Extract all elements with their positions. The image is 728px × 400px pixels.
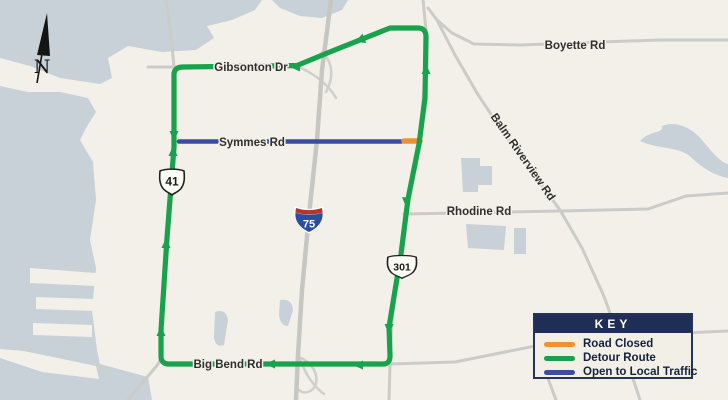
open-local-swatch-icon (544, 370, 575, 375)
detour-route-swatch-icon (544, 356, 575, 361)
us-41-label: 41 (165, 175, 179, 189)
detour-map: 41 75 301 Gibsonton Dr Boyette Rd Symmes… (0, 0, 728, 400)
road-label-boyette: Boyette Rd (545, 40, 606, 52)
legend-item-detour-route: Detour Route (544, 351, 691, 365)
pond-3 (514, 228, 526, 254)
legend-item-open-local: Open to Local Traffic (544, 365, 691, 379)
road-label-rhodine: Rhodine Rd (447, 206, 512, 218)
road-label-big-bend: Big Bend Rd (194, 359, 263, 371)
compass-n-label: N (34, 56, 51, 78)
road-label-symmes: Symmes Rd (219, 137, 285, 149)
legend-label-detour-route: Detour Route (583, 352, 656, 364)
road-label-gibsonton: Gibsonton Dr (214, 62, 288, 74)
pond-2 (466, 224, 506, 250)
map-key-legend: KEY Road Closed Detour Route Open to Loc… (533, 313, 693, 379)
legend-label-road-closed: Road Closed (583, 338, 653, 350)
legend-title: KEY (535, 315, 691, 333)
legend-label-open-local: Open to Local Traffic (583, 366, 697, 378)
i-75-label: 75 (303, 219, 315, 231)
legend-item-road-closed: Road Closed (544, 337, 691, 351)
us-301-label: 301 (393, 262, 411, 274)
road-closed-swatch-icon (544, 342, 575, 347)
legend-body: Road Closed Detour Route Open to Local T… (535, 333, 691, 379)
